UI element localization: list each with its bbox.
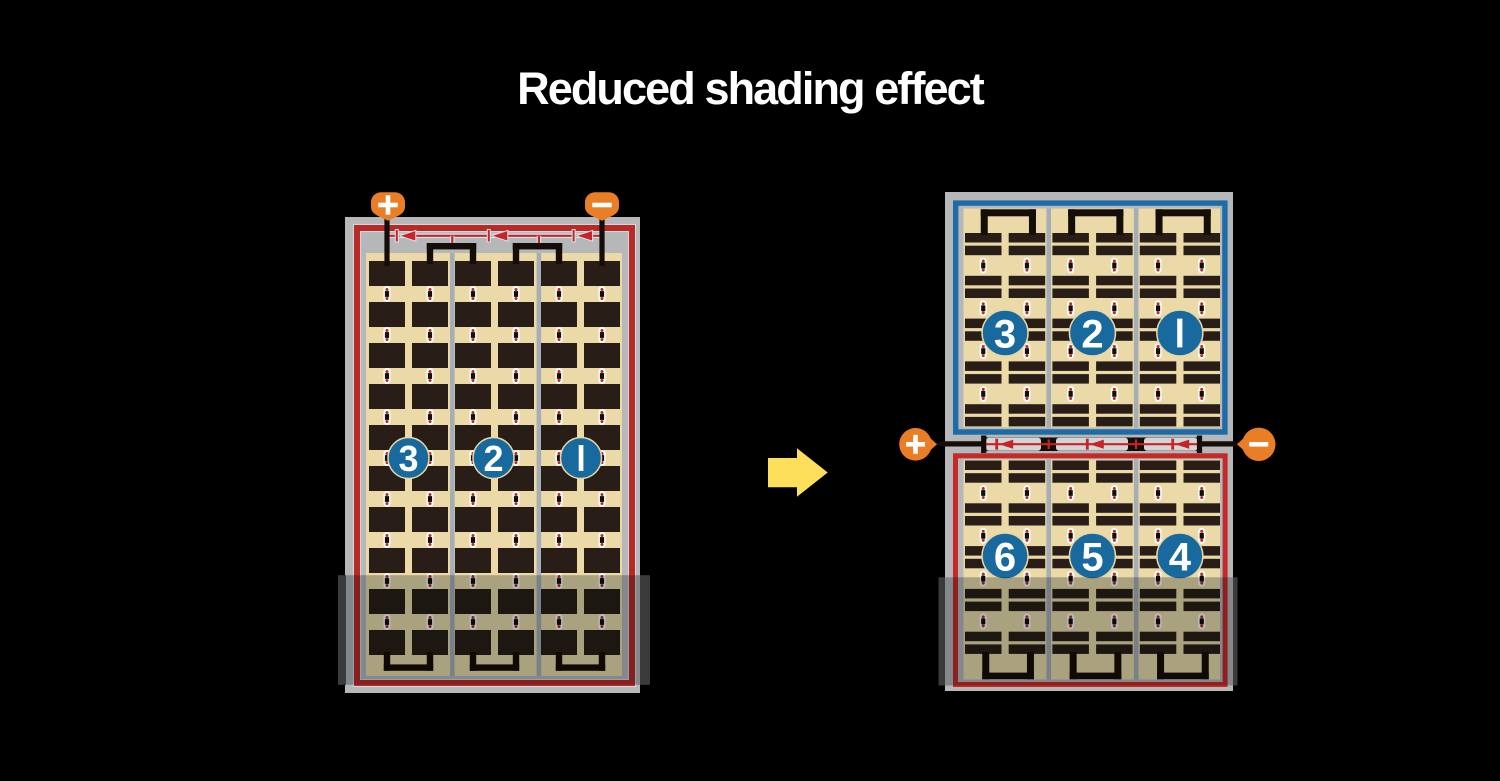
svg-text:Reduced shading effect: Reduced shading effect: [517, 63, 985, 114]
svg-text:4: 4: [1169, 535, 1192, 579]
svg-text:2: 2: [483, 438, 503, 479]
svg-text:2: 2: [1081, 312, 1103, 356]
svg-text:6: 6: [994, 535, 1016, 579]
svg-text:5: 5: [1081, 535, 1103, 579]
svg-text:3: 3: [994, 312, 1016, 356]
svg-text:3: 3: [398, 438, 418, 479]
